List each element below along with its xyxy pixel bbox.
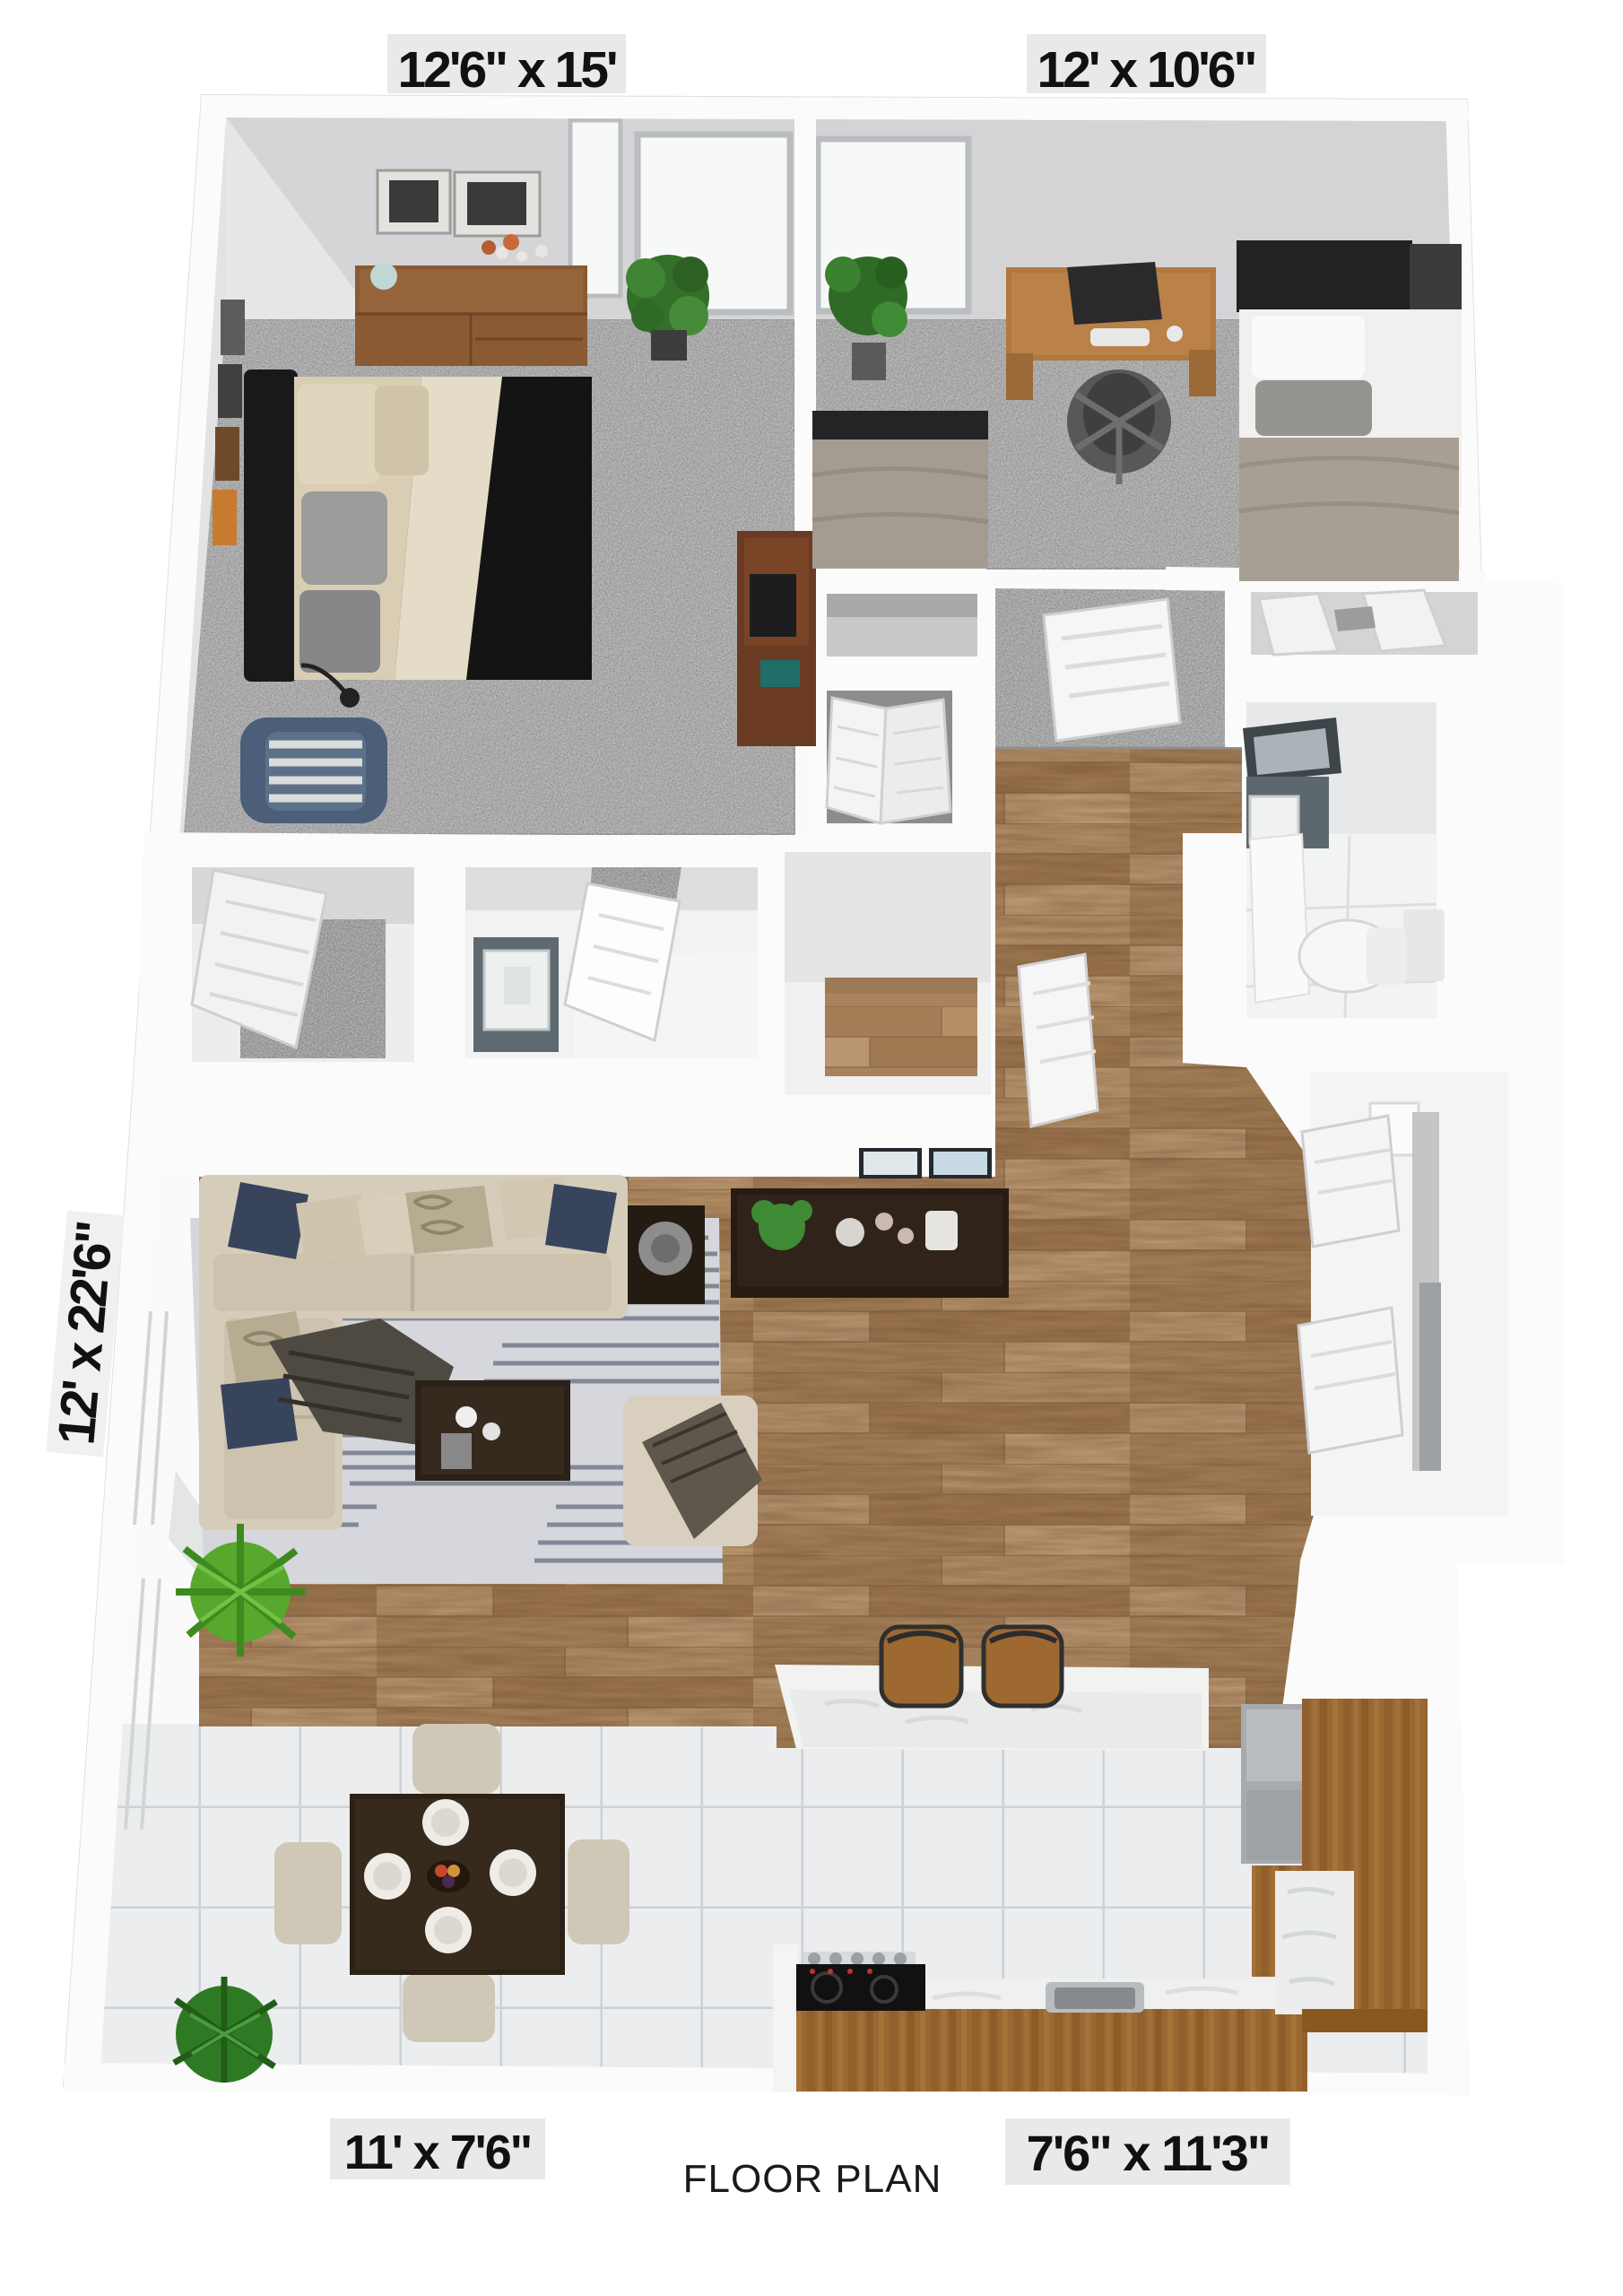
svg-text:7'6" x 11'3": 7'6" x 11'3"	[1027, 2125, 1270, 2181]
svg-text:11' x 7'6": 11' x 7'6"	[344, 2126, 531, 2179]
svg-text:12' x 10'6": 12' x 10'6"	[1037, 41, 1254, 99]
svg-text:12'6" x 15': 12'6" x 15'	[397, 41, 615, 99]
svg-text:FLOOR PLAN: FLOOR PLAN	[683, 2157, 942, 2201]
